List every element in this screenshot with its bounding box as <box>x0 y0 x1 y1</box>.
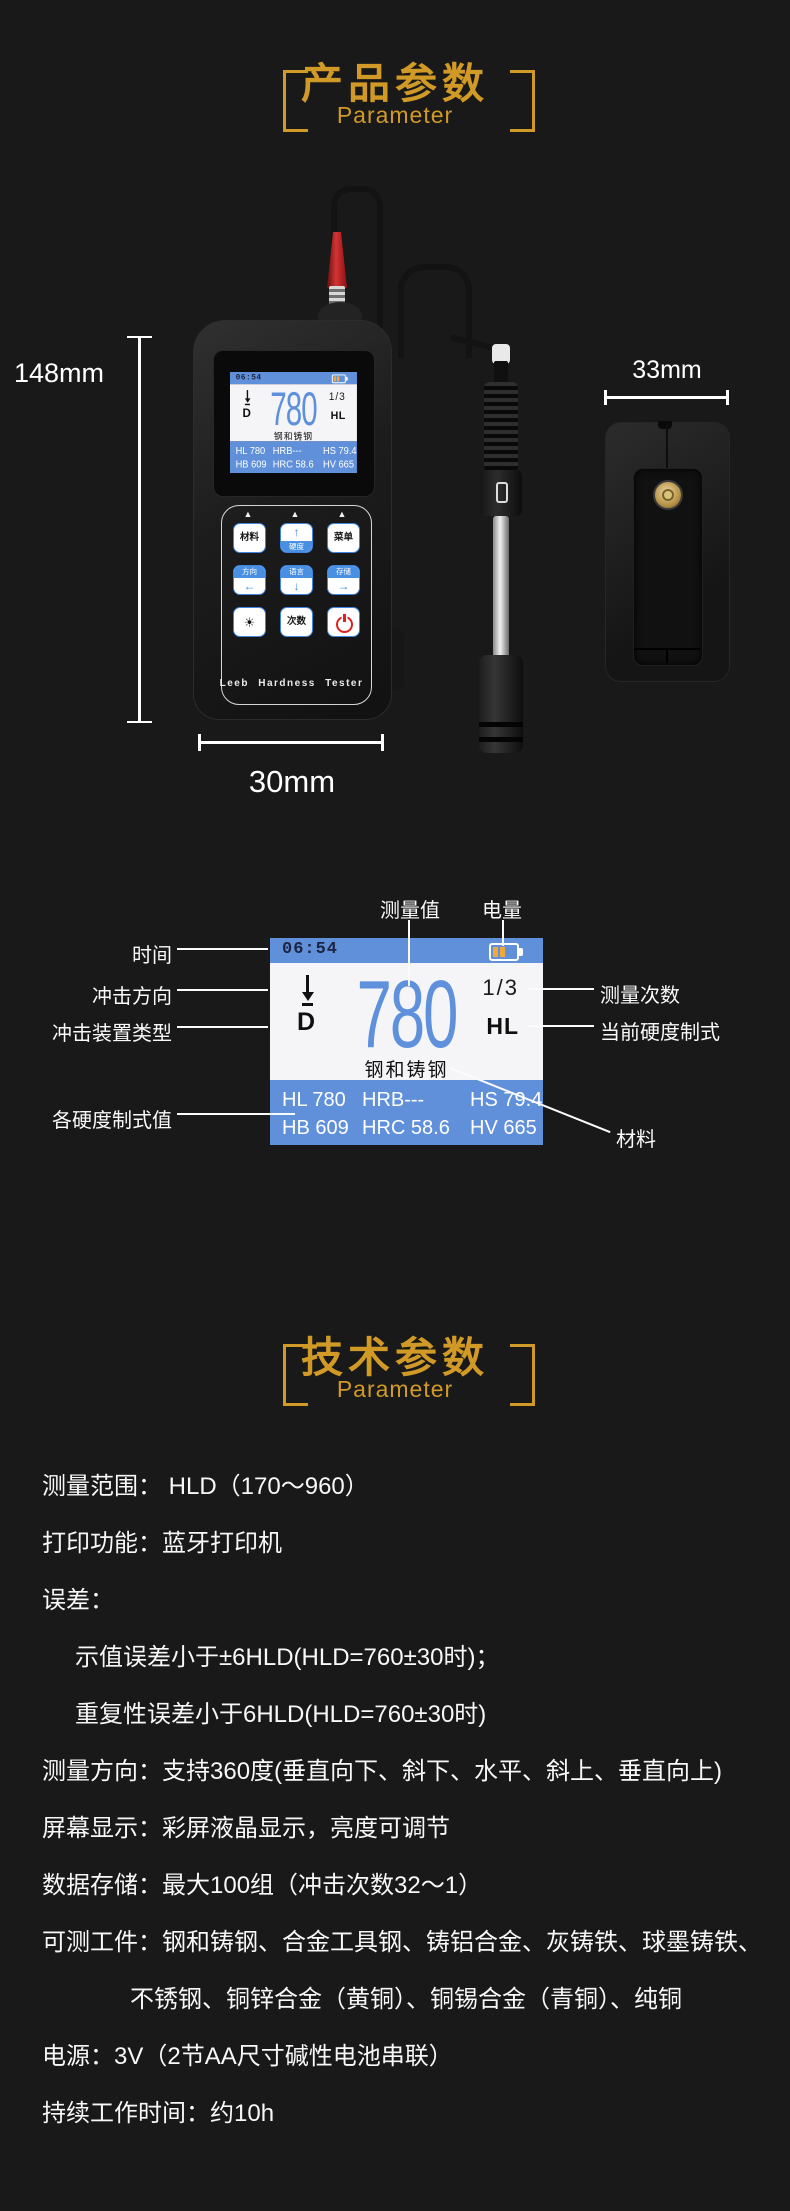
count-button: 次数 <box>280 607 313 637</box>
screen-main-area: D 780 1/3 HL 钢和铸钢 <box>270 963 543 1080</box>
device-brand-text: Leeb Hardness Tester <box>193 678 390 689</box>
annotation-current-scale: 当前硬度制式 <box>600 1016 720 1045</box>
impact-device-type: D <box>297 1008 315 1037</box>
material-button: 材料 <box>233 523 266 553</box>
height-dim-cap-bottom <box>127 721 152 723</box>
width-dimension-line <box>199 741 384 744</box>
scale-value: HB 609 <box>236 459 267 470</box>
width-dim-cap-left <box>198 734 201 751</box>
probe-collar-slot <box>496 482 508 503</box>
left-arrow-icon: ← <box>244 580 256 592</box>
left-bracket-decoration <box>283 1344 308 1406</box>
annotation-battery: 电量 <box>482 894 522 923</box>
probe-width-cap-left <box>604 390 607 405</box>
probe-groove <box>479 737 523 742</box>
scale-value: HS 79.4 <box>323 446 357 457</box>
current-scale: HL <box>331 409 346 422</box>
height-dimension-line <box>138 337 141 723</box>
measure-count: 1/3 <box>482 975 519 1001</box>
spec-workpieces-cont: 不锈钢、铜锌合金（黄铜）、铜锡合金（青铜）、纯铜 <box>130 1979 682 2014</box>
probe-width-dimension-line <box>605 396 728 399</box>
pointer-line-impact-device-type <box>177 1026 268 1028</box>
pointer-line-scale-values <box>177 1113 295 1115</box>
language-down-button: 语言 ↓ <box>280 565 313 595</box>
pointer-line-measure-value <box>408 920 410 986</box>
annotation-material: 材料 <box>616 1123 656 1152</box>
power-button <box>327 607 360 637</box>
spec-error: 误差： <box>42 1580 114 1615</box>
impact-direction-icon <box>244 390 251 407</box>
spec-measure-range: 测量范围： HLD（170～960） <box>42 1466 369 1501</box>
annotation-scale-values: 各硬度制式值 <box>52 1104 172 1133</box>
power-icon <box>336 615 351 630</box>
left-bracket-decoration <box>283 70 308 132</box>
product-section-subtitle: Parameter <box>0 102 790 129</box>
battery-icon <box>489 943 519 961</box>
measure-value: 780 <box>252 384 336 435</box>
spec-workpieces: 可测工件：钢和铸钢、合金工具钢、铸铝合金、灰铸铁、球墨铸铁、 <box>42 1922 762 1957</box>
triangle-marker: ▲ <box>335 509 349 519</box>
up-arrow-icon: ↑ <box>294 526 300 538</box>
probe-width-dimension-label: 33mm <box>612 356 722 385</box>
triangle-marker: ▲ <box>241 509 255 519</box>
screen-time: 06:54 <box>236 373 262 382</box>
annotation-impact-direction: 冲击方向 <box>72 980 172 1009</box>
scale-value: HL 780 <box>282 1089 346 1112</box>
screen-main-area: D 780 1/3 HL 钢和铸钢 <box>230 384 357 441</box>
pointer-line-time <box>177 948 268 950</box>
menu-button: 菜单 <box>327 523 360 553</box>
spec-power: 电源：3V（2节AA尺寸碱性电池串联） <box>42 2036 453 2071</box>
material-name: 钢和铸钢 <box>230 429 357 442</box>
pointer-line-current-scale <box>528 1025 594 1027</box>
scale-value: HRC 58.6 <box>362 1117 450 1140</box>
probe-groove <box>479 722 523 727</box>
right-bracket-decoration <box>510 70 535 132</box>
screen-time: 06:54 <box>282 940 338 959</box>
height-dimension-label: 148mm <box>14 358 104 389</box>
right-bracket-decoration <box>510 1344 535 1406</box>
down-arrow-icon: ↓ <box>294 580 300 592</box>
scale-value: HRB--- <box>362 1089 424 1112</box>
right-arrow-icon: → <box>338 580 350 592</box>
annotation-impact-device-type: 冲击装置类型 <box>52 1017 172 1046</box>
annotation-measure-value: 测量值 <box>374 894 446 923</box>
device-back-notch <box>658 421 672 429</box>
width-dim-cap-right <box>381 734 384 751</box>
scale-value: HB 609 <box>282 1117 349 1140</box>
impact-direction-icon <box>300 975 316 1009</box>
width-dimension-label: 30mm <box>230 764 354 800</box>
annotation-time: 时间 <box>92 939 172 968</box>
tech-section-subtitle: Parameter <box>0 1376 790 1403</box>
battery-door-split <box>666 648 668 663</box>
screen-diagram: 06:54 D 780 1/3 HL 钢和铸钢 HL 780 HRB--- HS… <box>270 938 543 1145</box>
pointer-line-battery <box>502 920 504 946</box>
device-back-connector-pin <box>662 489 674 501</box>
direction-left-button: 方向 ← <box>233 565 266 595</box>
scale-value: HRB--- <box>273 446 302 457</box>
spec-indication-error: 示值误差小于±6HLD(HLD=760±30时)； <box>75 1637 499 1672</box>
cable-loop <box>398 264 472 358</box>
spec-repeat-error: 重复性误差小于6HLD(HLD=760±30时) <box>75 1694 486 1729</box>
pointer-line-impact-direction <box>177 989 268 991</box>
measure-value: 780 <box>316 963 496 1067</box>
up-hardness-button: ↑ 硬度 <box>280 523 313 553</box>
probe-spring-coil <box>484 382 518 472</box>
triangle-marker: ▲ <box>288 509 302 519</box>
spec-data-storage: 数据存储：最大100组（冲击次数32～1） <box>42 1865 482 1900</box>
device-screen: 06:54 D 780 1/3 HL 钢和铸钢 HL 780 HRB--- HS… <box>230 372 357 473</box>
material-name: 钢和铸钢 <box>270 1055 543 1082</box>
probe-release-latch <box>494 361 508 383</box>
scale-value: HL 780 <box>236 446 266 457</box>
product-spec-page: 产品参数 Parameter 148mm 06:54 D 780 1/3 <box>0 0 790 2211</box>
measure-count: 1/3 <box>329 390 346 403</box>
device-back-seam <box>666 423 668 469</box>
scale-value: HV 665 <box>323 459 354 470</box>
probe-width-cap-right <box>726 390 729 405</box>
annotation-measure-count: 测量次数 <box>600 979 680 1008</box>
scale-value: HRC 58.6 <box>273 459 314 470</box>
screen-values-area: HL 780 HRB--- HS 79.4 HB 609 HRC 58.6 HV… <box>230 441 357 473</box>
spec-work-time: 持续工作时间：约10h <box>42 2093 274 2128</box>
impact-device-type: D <box>243 406 251 420</box>
spec-screen-display: 屏幕显示：彩屏液晶显示，亮度可调节 <box>42 1808 450 1843</box>
pointer-line-measure-count <box>528 988 594 990</box>
current-scale: HL <box>486 1013 519 1040</box>
battery-icon <box>332 374 346 383</box>
spec-print-function: 打印功能：蓝牙打印机 <box>42 1523 282 1558</box>
probe-guide-tube <box>493 516 509 658</box>
spec-measure-direction: 测量方向：支持360度(垂直向下、斜下、水平、斜上、垂直向上) <box>42 1751 722 1786</box>
height-dim-cap-top <box>127 336 152 338</box>
brightness-icon: ☀ <box>244 616 256 629</box>
scale-value: HV 665 <box>470 1117 537 1140</box>
brightness-button: ☀ <box>233 607 266 637</box>
storage-right-button: 存储 → <box>327 565 360 595</box>
